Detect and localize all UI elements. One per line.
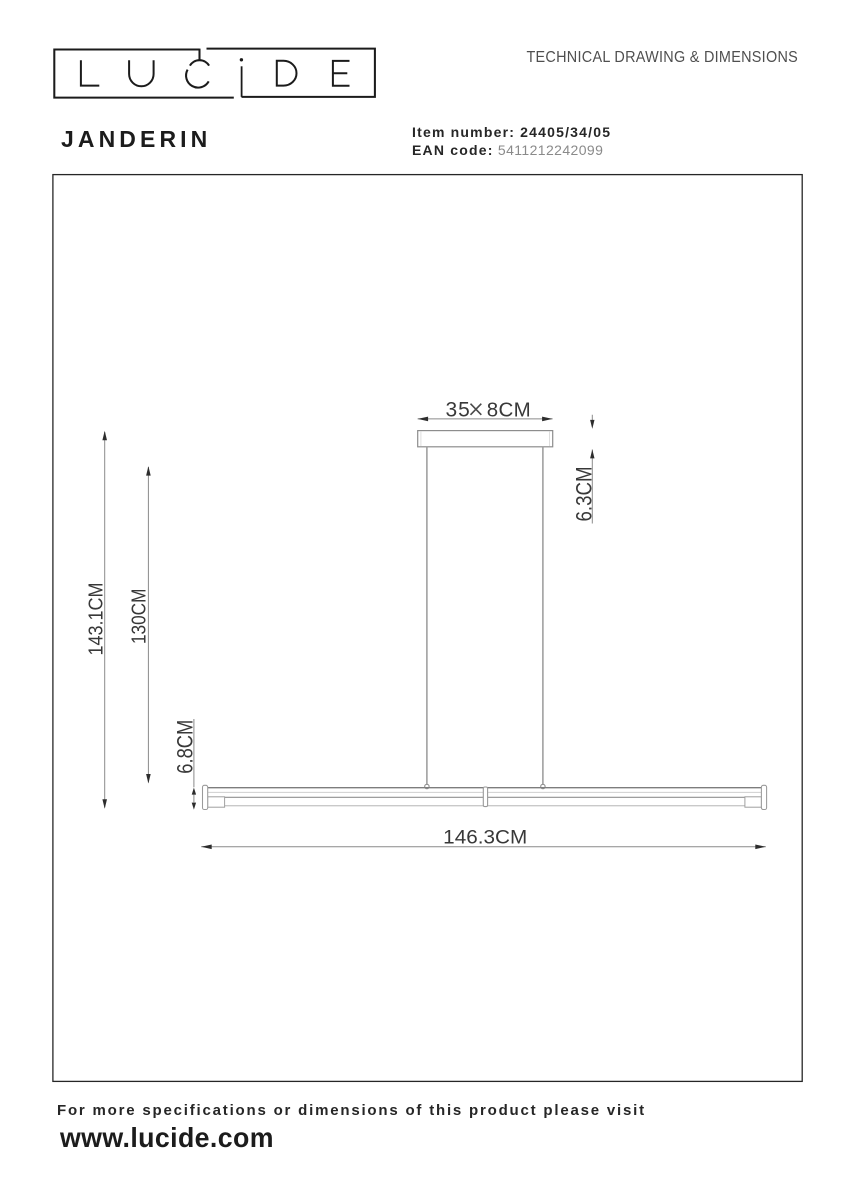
svg-text:8CM: 8CM <box>487 399 531 422</box>
svg-text:130CM: 130CM <box>128 589 150 645</box>
svg-text:143.1CM: 143.1CM <box>85 583 107 656</box>
svg-text:6.8CM: 6.8CM <box>173 720 198 774</box>
svg-text:35: 35 <box>445 399 470 422</box>
svg-text:6.3CM: 6.3CM <box>571 467 596 522</box>
svg-text:146.3CM: 146.3CM <box>443 827 527 849</box>
